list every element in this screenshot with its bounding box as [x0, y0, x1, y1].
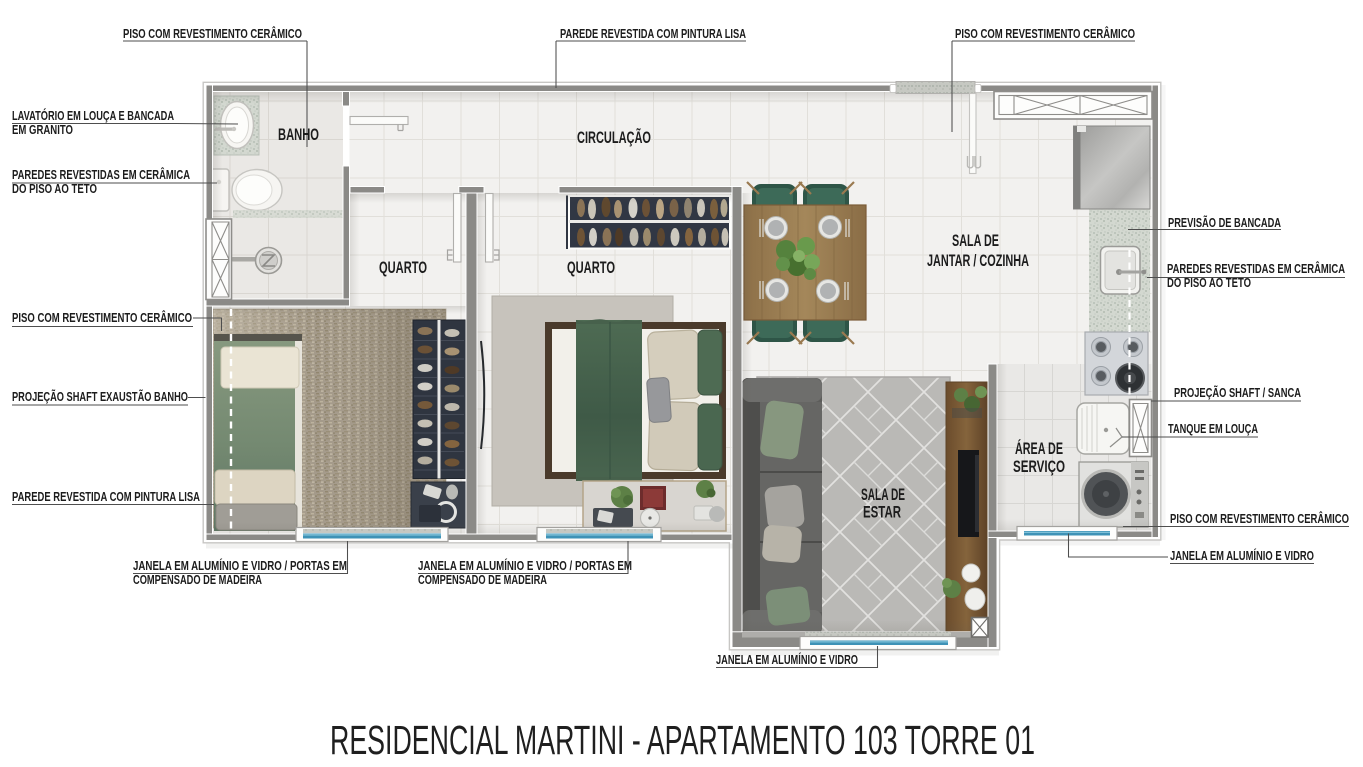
svg-text:SALA DE: SALA DE — [861, 485, 905, 504]
svg-text:PAREDE REVESTIDA COM PINTURA L: PAREDE REVESTIDA COM PINTURA LISA — [560, 26, 746, 41]
svg-text:DO PISO AO TETO: DO PISO AO TETO — [1167, 275, 1251, 290]
svg-text:ÁREA DE: ÁREA DE — [1015, 439, 1063, 458]
svg-text:PAREDES REVESTIDAS EM CERÂMICA: PAREDES REVESTIDAS EM CERÂMICA — [12, 167, 190, 182]
svg-text:BANHO: BANHO — [278, 125, 319, 144]
svg-text:SERVIÇO: SERVIÇO — [1013, 457, 1065, 476]
svg-text:EM GRANITO: EM GRANITO — [12, 122, 73, 137]
svg-text:PROJEÇÃO SHAFT EXAUSTÃO BANHO: PROJEÇÃO SHAFT EXAUSTÃO BANHO — [12, 389, 188, 404]
svg-text:COMPENSADO DE MADEIRA: COMPENSADO DE MADEIRA — [418, 572, 547, 587]
svg-text:JANELA EM ALUMÍNIO E VIDRO / P: JANELA EM ALUMÍNIO E VIDRO / PORTAS EM — [133, 558, 347, 573]
svg-text:PROJEÇÃO SHAFT / SANCA: PROJEÇÃO SHAFT / SANCA — [1174, 385, 1301, 400]
svg-text:QUARTO: QUARTO — [567, 258, 615, 277]
svg-text:CIRCULAÇÃO: CIRCULAÇÃO — [577, 127, 651, 147]
svg-text:LAVATÓRIO EM LOUÇA E BANCADA: LAVATÓRIO EM LOUÇA E BANCADA — [12, 108, 174, 123]
svg-text:PREVISÃO DE BANCADA: PREVISÃO DE BANCADA — [1168, 215, 1281, 230]
svg-text:RESIDENCIAL MARTINI - APARTAME: RESIDENCIAL MARTINI - APARTAMENTO 103 TO… — [330, 717, 1035, 763]
svg-text:JANELA EM ALUMÍNIO E VIDRO: JANELA EM ALUMÍNIO E VIDRO — [716, 652, 858, 667]
svg-text:DO PISO AO TETO: DO PISO AO TETO — [12, 181, 97, 196]
svg-text:SALA DE: SALA DE — [952, 231, 999, 250]
svg-text:TANQUE EM LOUÇA: TANQUE EM LOUÇA — [1168, 421, 1258, 436]
svg-text:PAREDES REVESTIDAS EM CERÂMICA: PAREDES REVESTIDAS EM CERÂMICA — [1167, 261, 1345, 276]
svg-text:PISO COM REVESTIMENTO CERÂMICO: PISO COM REVESTIMENTO CERÂMICO — [123, 26, 302, 41]
svg-text:PISO COM REVESTIMENTO CERÂMICO: PISO COM REVESTIMENTO CERÂMICO — [12, 310, 192, 325]
svg-text:JANTAR / COZINHA: JANTAR / COZINHA — [927, 251, 1029, 270]
svg-text:PISO COM REVESTIMENTO CERÂMICO: PISO COM REVESTIMENTO CERÂMICO — [1170, 511, 1349, 526]
svg-text:JANELA EM ALUMÍNIO E VIDRO / P: JANELA EM ALUMÍNIO E VIDRO / PORTAS EM — [418, 558, 632, 573]
svg-text:PAREDE REVESTIDA COM PINTURA L: PAREDE REVESTIDA COM PINTURA LISA — [12, 489, 200, 504]
svg-text:JANELA EM ALUMÍNIO E VIDRO: JANELA EM ALUMÍNIO E VIDRO — [1170, 548, 1314, 563]
svg-text:PISO COM REVESTIMENTO CERÂMICO: PISO COM REVESTIMENTO CERÂMICO — [955, 26, 1135, 41]
svg-text:ESTAR: ESTAR — [863, 503, 901, 522]
svg-text:QUARTO: QUARTO — [379, 258, 427, 277]
svg-text:COMPENSADO DE MADEIRA: COMPENSADO DE MADEIRA — [133, 572, 262, 587]
